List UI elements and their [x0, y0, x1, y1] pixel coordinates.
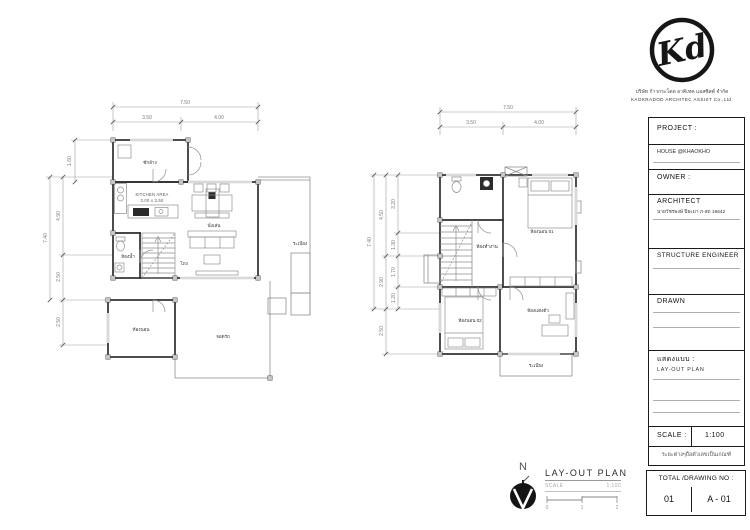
sheet-type-label: แสดงแบบ : — [657, 354, 695, 365]
dim-text: 4.90 — [56, 211, 62, 221]
dim-text: 7.40 — [367, 237, 373, 247]
room-label-laundry: ซักล้าง — [143, 159, 157, 165]
room-label-living: นั่งเล่น — [208, 222, 222, 228]
legend-scale-label: SCALE — [545, 483, 563, 489]
owner-label: OWNER : — [657, 174, 691, 181]
room-label-carport: จอดรถ — [216, 334, 230, 339]
company-logo-block: Kd บริษัท ก้าวกระโดด อาคิเทค แอสซิสต์ จำ… — [612, 14, 750, 102]
plan1-top-dimensions: 7.50 3.50 4.00 — [111, 100, 260, 131]
plan1-doors — [140, 169, 166, 312]
dim-text: 7.40 — [43, 233, 49, 243]
company-name-thai: บริษัท ก้าวกระโดด อาคิเทค แอสซิสต์ จำกัด — [612, 88, 750, 96]
company-name-english: KAOKRADOD ARCHITEC ASSIST Co.,Ltd. — [612, 97, 750, 102]
dim-text: 3.50 — [142, 115, 152, 121]
plan2-stairs — [440, 222, 472, 285]
legend-text-block: LAY-OUT PLAN SCALE 1:100 0 1 2 — [545, 468, 621, 515]
legend-title: LAY-OUT PLAN — [545, 468, 621, 478]
sheet-type-value: LAY-OUT PLAN — [657, 367, 705, 373]
room-label-bedroom: ห้องนอน — [132, 327, 150, 332]
project-label: PROJECT : — [657, 125, 697, 132]
plan2-columns — [438, 173, 578, 356]
room-label-balcony: ระเบียง — [529, 362, 543, 368]
plan1-left-dimensions: 1.60 7.40 4.90 2.50 2.50 — [43, 138, 113, 347]
first-floor-plan: 7.50 3.50 4.00 1.60 7.40 4.90 2.50 2.50 — [38, 85, 318, 405]
plan2-top-dimensions: 7.50 3.50 4.00 — [438, 105, 578, 135]
scale-bar-tick: 0 — [546, 505, 549, 510]
scale-bar-tick: 1 — [581, 505, 584, 510]
room-label-kitchen: KITCHEN AREA — [135, 192, 168, 197]
dim-text: 1.60 — [67, 156, 73, 166]
scale-label: SCALE : — [657, 432, 687, 439]
plan2-left-dimensions: 7.40 4.50 2.90 2.50 3.20 1.30 1.70 1.20 — [367, 173, 440, 356]
room-label-bedroom1: ห้องนอน 01 — [530, 229, 554, 234]
second-floor-plan: 7.50 3.50 4.00 7.40 4.50 2.90 2.50 3.20 — [360, 85, 610, 405]
plan1-windows — [107, 139, 254, 343]
room-label-kitchen-size: 3.00 x 3.50 — [141, 198, 164, 203]
plan1-walls — [108, 140, 258, 357]
dim-text: 2.50 — [56, 317, 62, 327]
room-label-office: ห้องทำงาน — [476, 244, 498, 249]
dim-text: 2.50 — [379, 326, 385, 336]
dim-text: 2.50 — [56, 272, 62, 282]
dim-text: 7.50 — [180, 100, 190, 106]
dim-text: 3.50 — [466, 120, 476, 126]
project-value: HOUSE @KHAOKHO — [657, 149, 710, 155]
total-drawing-label: TOTAL /DRAWING NO : — [647, 475, 745, 482]
company-logo-icon: Kd — [645, 14, 719, 86]
plan1-sofa-set — [188, 231, 238, 275]
drawing-number: A - 01 — [691, 494, 747, 504]
sheet-legend: N LAY-OUT PLAN SCALE 1:100 0 1 2 — [503, 458, 638, 524]
drawing-number-block: TOTAL /DRAWING NO : 01 A - 01 — [646, 470, 746, 516]
scale-bar-tick: 2 — [616, 505, 619, 510]
plan1-columns — [106, 138, 272, 380]
dim-text: 1.20 — [391, 293, 397, 303]
dim-text: 4.00 — [214, 115, 224, 121]
dim-text: 4.50 — [379, 210, 385, 220]
architect-value: นายวัชรพงษ์ ปิยะมา ภ-สถ 19642 — [657, 208, 725, 216]
room-label-dressing: ห้องแต่งตัว — [527, 307, 549, 313]
plan2-bathroom-fixtures — [452, 177, 493, 233]
north-label: N — [519, 461, 527, 473]
dim-text: 2.90 — [379, 277, 385, 287]
dim-text: 1.70 — [391, 267, 397, 277]
plan2-walls — [440, 175, 576, 354]
dim-text: 7.50 — [503, 105, 513, 111]
plan1-stairs — [142, 233, 175, 278]
scale-value: 1:100 — [705, 432, 725, 439]
dim-text: 1.30 — [391, 240, 397, 250]
title-block: PROJECT : HOUSE @KHAOKHO OWNER : ARCHITE… — [648, 117, 745, 466]
room-label-porch: ระเบียง — [293, 240, 307, 246]
plan2-windows — [439, 174, 577, 355]
north-arrow-icon: N — [503, 458, 543, 522]
room-label-bath: ห้องน้ำ — [121, 253, 135, 259]
drawing-sheet: 7.50 3.50 4.00 1.60 7.40 4.90 2.50 2.50 — [0, 0, 750, 530]
scale-bar: 0 1 2 — [545, 492, 621, 510]
legend-scale-value: 1:100 — [606, 483, 621, 489]
dimension-note: ระยะต่างๆถือตัวเลขเป็นเกณฑ์ — [649, 451, 744, 459]
scale-divider — [691, 427, 692, 446]
architect-label: ARCHITECT — [657, 198, 701, 205]
room-label-bedroom2: ห้องนอน 02 — [458, 318, 482, 323]
structure-engineer-label: STRUCTURE ENGINEER — [657, 252, 739, 259]
room-label-hall: โถง — [180, 260, 188, 266]
logo-monogram: Kd — [653, 26, 711, 74]
dim-text: 4.00 — [534, 120, 544, 126]
drawn-label: DRAWN — [657, 298, 685, 305]
dim-text: 3.20 — [391, 199, 397, 209]
sheet-count: 01 — [647, 494, 691, 504]
